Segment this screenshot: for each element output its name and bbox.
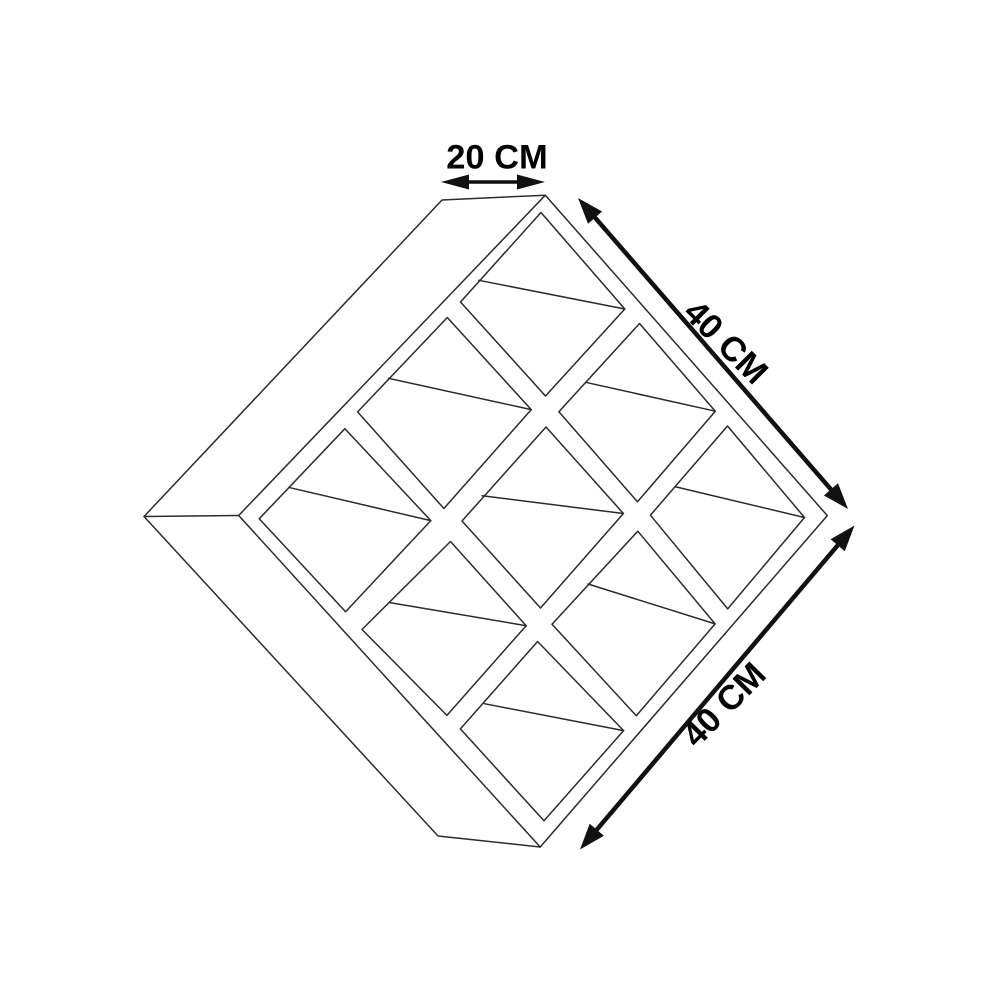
svg-text:40 CM: 40 CM (676, 293, 775, 392)
svg-text:20 CM: 20 CM (446, 139, 548, 177)
svg-text:40 CM: 40 CM (675, 655, 773, 754)
